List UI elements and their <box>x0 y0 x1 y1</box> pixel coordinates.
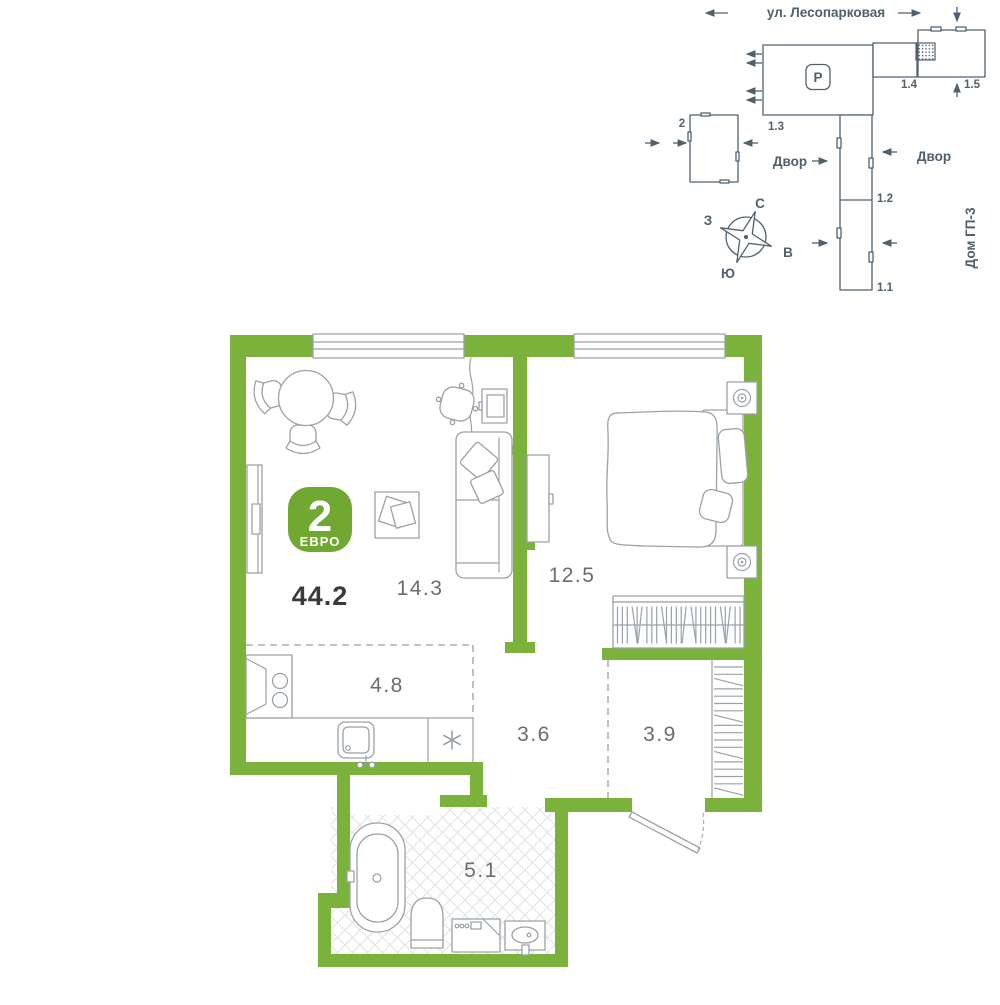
house-gp3-label: Дом ГП-3 <box>963 207 978 268</box>
type-badge: 2 ЕВРО <box>288 487 352 552</box>
compass-south: Ю <box>721 266 735 281</box>
building-notch <box>837 228 841 238</box>
bathtub <box>347 823 405 932</box>
area-label-kitchen: 4.8 <box>370 674 404 697</box>
desk <box>479 389 507 423</box>
building-1-3-label: 1.3 <box>768 121 784 133</box>
window-bedroom <box>574 334 725 358</box>
washing-machine <box>452 919 500 952</box>
dining-chair <box>286 425 320 454</box>
total-area-label: 44.2 <box>292 581 349 611</box>
building-1-5-label: 1.5 <box>964 79 981 91</box>
badge-type: ЕВРО <box>300 534 341 549</box>
hall-closet <box>712 660 743 798</box>
nightstand-top <box>727 382 757 414</box>
building-notch <box>956 27 966 31</box>
street-label: ул. Лесопарковая <box>767 5 885 20</box>
wardrobe <box>613 596 744 648</box>
building-notch <box>688 132 691 141</box>
courtyard-label-right: Двор <box>917 149 951 164</box>
building-notch <box>869 158 873 168</box>
building-1-4 <box>873 43 917 77</box>
toilet <box>411 898 443 948</box>
area-label-living: 14.3 <box>397 577 444 600</box>
compass-rose: С З В Ю <box>704 196 793 281</box>
floor-plan-canvas: ул. Лесопарковая P 1.3 1.4 1.5 1.2 1.1 <box>0 0 1000 1000</box>
entry-door-swing-arc <box>698 813 704 850</box>
compass-west: З <box>704 213 712 228</box>
building-notch <box>837 138 841 148</box>
fridge-snowflake-icon <box>444 731 460 749</box>
building-notch <box>701 113 710 116</box>
compass-north: С <box>755 196 765 211</box>
window-living <box>313 334 464 358</box>
building-notch <box>931 27 941 31</box>
compass-east: В <box>783 245 793 260</box>
building-1-1-label: 1.1 <box>877 282 894 294</box>
area-label-corridor: 3.9 <box>643 723 677 746</box>
site-plan: ул. Лесопарковая P 1.3 1.4 1.5 1.2 1.1 <box>645 5 985 294</box>
building-strip <box>840 115 872 290</box>
building-1-2-label: 1.2 <box>877 193 893 205</box>
building-notch <box>736 152 739 161</box>
kitchen-stove <box>246 655 292 718</box>
apartment-plan: 2 ЕВРО 44.2 14.3 12.5 4.8 3.6 3.9 5.1 <box>230 334 762 967</box>
area-label-bedroom: 12.5 <box>549 564 596 587</box>
desk-chair <box>431 378 482 429</box>
building-notch <box>869 252 873 262</box>
coffee-table <box>375 492 419 538</box>
svg-text:P: P <box>813 70 822 85</box>
tv-dresser <box>527 455 553 542</box>
area-label-hallway: 3.6 <box>517 723 551 746</box>
sofa <box>456 432 512 578</box>
bathroom-sink <box>505 921 545 955</box>
nightstand-bottom <box>727 546 757 578</box>
wall-shelf <box>247 465 262 573</box>
kitchen-sink <box>338 722 375 768</box>
courtyard-label-left: Двор <box>773 154 807 169</box>
entry-door <box>629 812 700 853</box>
area-label-bathroom: 5.1 <box>464 859 498 882</box>
building-2-label: 2 <box>679 118 685 130</box>
building-1-4-label: 1.4 <box>901 79 918 91</box>
apartment-location-marker <box>916 43 935 60</box>
bed <box>607 410 749 547</box>
building-2 <box>690 115 738 182</box>
apartment-card: ул. Лесопарковая P 1.3 1.4 1.5 1.2 1.1 <box>0 0 1000 1000</box>
dining-table <box>279 371 334 426</box>
building-notch <box>720 180 729 183</box>
